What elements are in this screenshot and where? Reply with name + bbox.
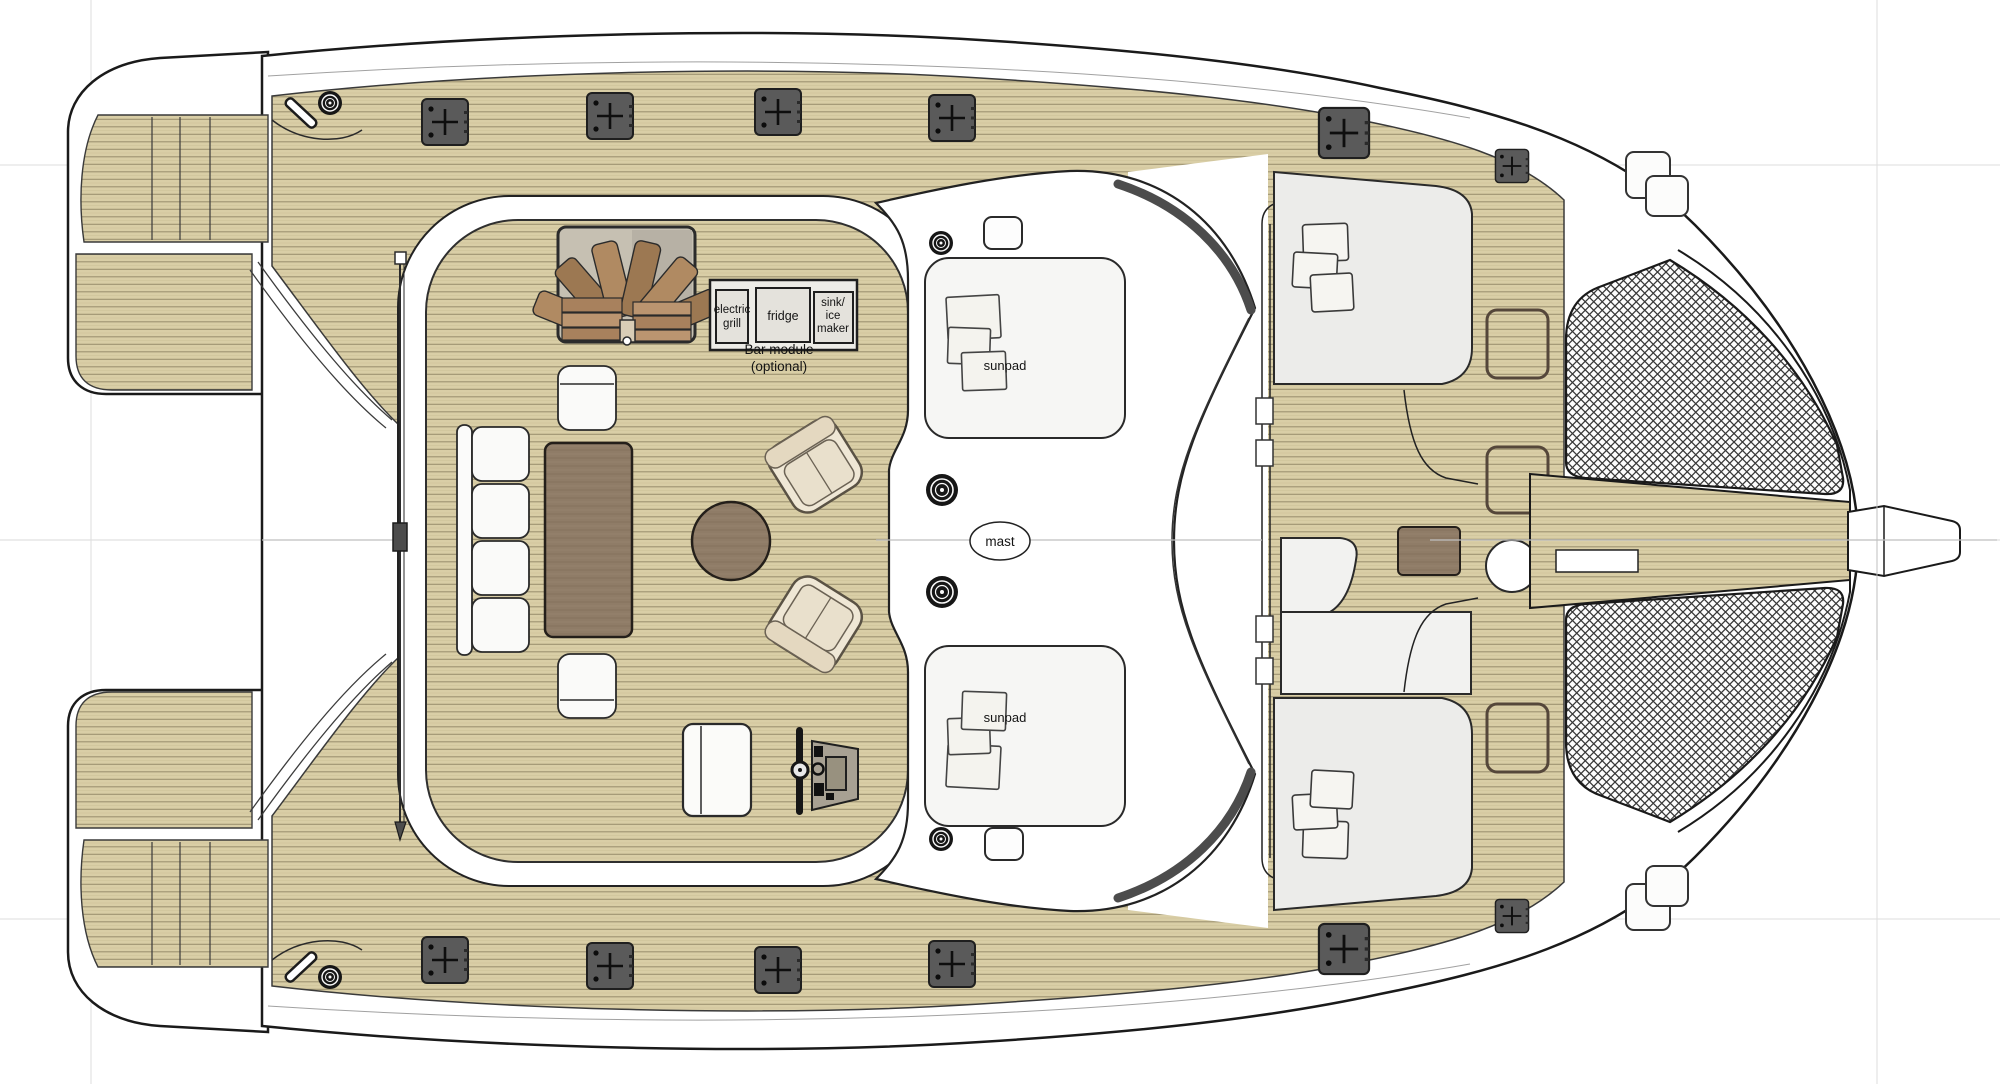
deck-hatch [587,93,633,139]
deck-hatch [1319,924,1369,974]
sunpad-bottom-label: sunpad [984,710,1027,725]
sunpad-top-group: sunpad [925,258,1125,438]
deck-hatch [587,943,633,989]
sofa-cushion [472,484,529,538]
mast-label-group: mast [970,522,1030,560]
sofa-cushion [472,541,529,595]
sink-label-3: maker [817,323,849,335]
coffee-table [692,502,770,580]
dining-chair-top [558,366,616,430]
deck-hatch [755,947,801,993]
winch [926,474,958,506]
winch [929,827,953,851]
deck-hatch [1495,899,1528,932]
anchor-locker [1556,550,1638,572]
helm-seat [683,724,751,816]
deck-hatch [1319,108,1369,158]
sunpad-bottom-group: sunpad [925,646,1125,826]
deck-hatch [755,89,801,135]
sink-label-2: ice [826,310,841,322]
winch [926,576,958,608]
helm-screen [826,757,846,790]
bar-caption-1: Bar module [744,342,813,357]
dining-table [545,443,632,637]
deck-hatch [929,941,975,987]
winch [318,91,342,115]
sofa-cushion [472,427,529,481]
spiral-staircase [531,227,722,345]
dining-chair-bottom [558,654,616,718]
winch [318,965,342,989]
fridge-label: fridge [767,309,798,323]
sunpad-top-label: sunpad [984,358,1027,373]
bar-caption-2: (optional) [751,359,807,374]
electric-grill [716,290,748,343]
deck-plan-drawing: electric grill fridge sink/ ice maker Ba… [0,0,2000,1084]
roof-hatch [985,828,1023,860]
deck-hatch [1495,149,1528,182]
foredeck-table [1398,527,1460,575]
sink-label-1: sink/ [821,297,845,309]
deck-hatch [422,99,468,145]
grill-label-1: electric [714,304,751,316]
winch [929,231,953,255]
foredeck-bench [1281,612,1471,694]
deck-plan: electric grill fridge sink/ ice maker Ba… [0,0,2000,1084]
deck-hatch [422,937,468,983]
roof-hatch [984,217,1022,249]
deck-hatch [929,95,975,141]
bowsprit [1848,506,1960,576]
grill-label-2: grill [723,318,741,330]
mast-label: mast [985,534,1015,549]
sofa-cushion [472,598,529,652]
